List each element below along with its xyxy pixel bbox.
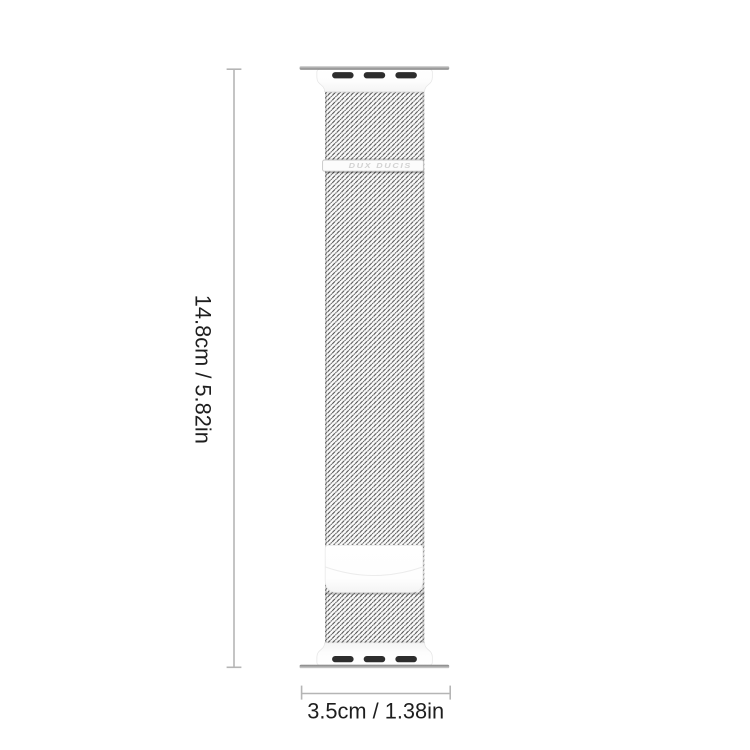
svg-text:DUX DUCIS: DUX DUCIS bbox=[349, 162, 412, 170]
svg-text:3.5cm / 1.38in: 3.5cm / 1.38in bbox=[307, 699, 444, 724]
svg-text:14.8cm / 5.82in: 14.8cm / 5.82in bbox=[190, 295, 215, 444]
